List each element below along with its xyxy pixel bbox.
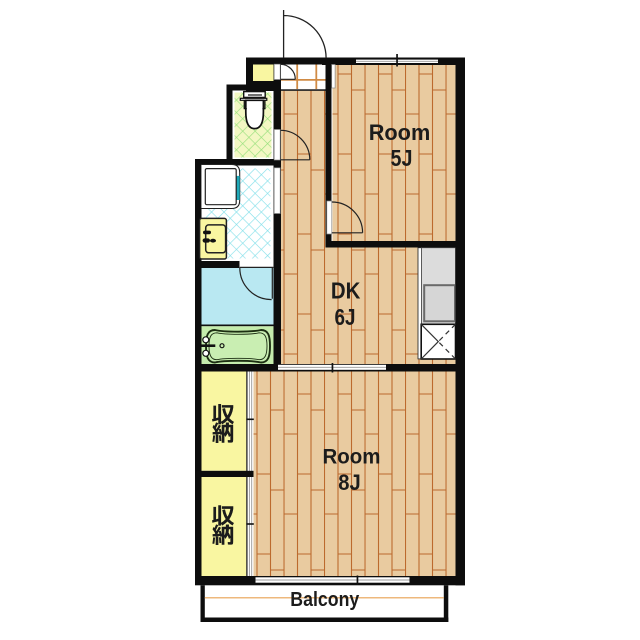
svg-text:8J: 8J [338, 470, 361, 495]
svg-text:Room: Room [369, 120, 431, 145]
svg-text:6J: 6J [335, 304, 356, 330]
svg-text:DK: DK [331, 278, 361, 304]
svg-text:Balcony: Balcony [290, 589, 360, 611]
svg-text:5J: 5J [391, 145, 413, 171]
svg-text:Room: Room [323, 445, 381, 468]
